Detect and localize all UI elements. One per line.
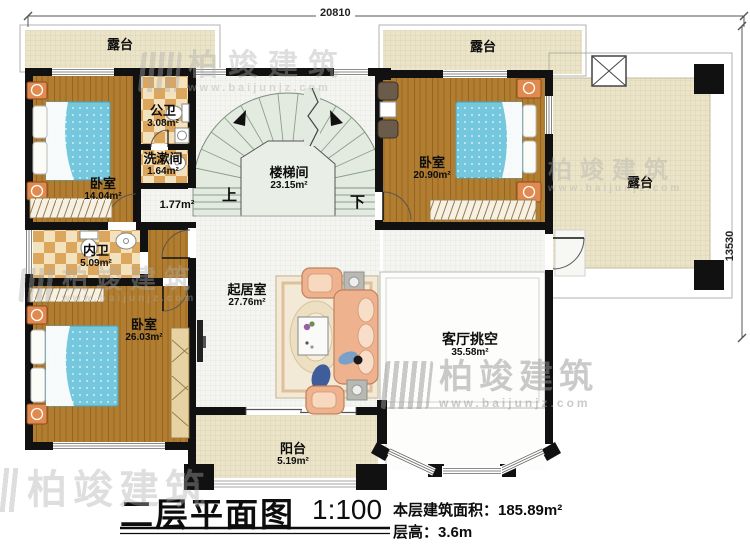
stair-up-label: 上 xyxy=(222,184,237,205)
flue-box xyxy=(592,56,626,86)
room-label-terrace-top-left: 露台 xyxy=(107,38,133,52)
window-north-3 xyxy=(334,68,368,76)
room-label-bedroom-right: 卧室 20.90m² xyxy=(413,156,450,181)
window-south-1 xyxy=(53,442,165,450)
room-label-bedroom-small: 卧室 14.04m² xyxy=(84,177,121,202)
tv xyxy=(197,320,203,362)
window-north-1 xyxy=(52,68,114,76)
room-label-bedroom-large: 卧室 26.03m² xyxy=(125,318,162,343)
room-label-balcony: 阳台 5.19m² xyxy=(277,442,309,467)
floor-area-note: 本层建筑面积：185.89m² xyxy=(393,499,562,520)
stair-break-gap xyxy=(304,88,320,146)
room-label-terrace-right: 露台 xyxy=(627,176,653,190)
stair-down-label: 下 xyxy=(350,191,365,212)
door-inner-bath xyxy=(140,252,148,274)
room-label-void: 客厅挑空 35.58m² xyxy=(442,332,498,358)
room-label-inner-bath: 内卫 5.09m² xyxy=(80,244,112,269)
floor-plan: 露台 露台 露台 卧室 14.04m² 公卫 3.08m² 洗漱间 1.64m²… xyxy=(0,0,750,548)
dimension-top: 20810 xyxy=(316,7,355,19)
room-label-washroom: 洗漱间 1.64m² xyxy=(143,152,182,177)
window-north-4 xyxy=(443,70,507,78)
drawing-scale: 1:100 xyxy=(312,494,382,526)
dimension-right: 13530 xyxy=(724,214,736,278)
room-label-terrace-top-mid: 露台 xyxy=(470,40,496,54)
room-label-living-room: 起居室 27.76m² xyxy=(227,283,266,308)
window-north-2 xyxy=(196,68,226,76)
page-title: 二层平面图 xyxy=(120,488,295,536)
room-label-hallway: 1.77m² xyxy=(160,199,195,211)
floor-plan-drawing xyxy=(0,0,750,548)
room-label-stairwell: 楼梯间 23.15m² xyxy=(269,166,308,191)
floor-height-note: 层高：3.6m xyxy=(393,521,472,542)
window-west-1 xyxy=(25,230,33,274)
room-label-public-bath: 公卫 3.08m² xyxy=(147,104,179,129)
window-east-1 xyxy=(545,96,553,134)
